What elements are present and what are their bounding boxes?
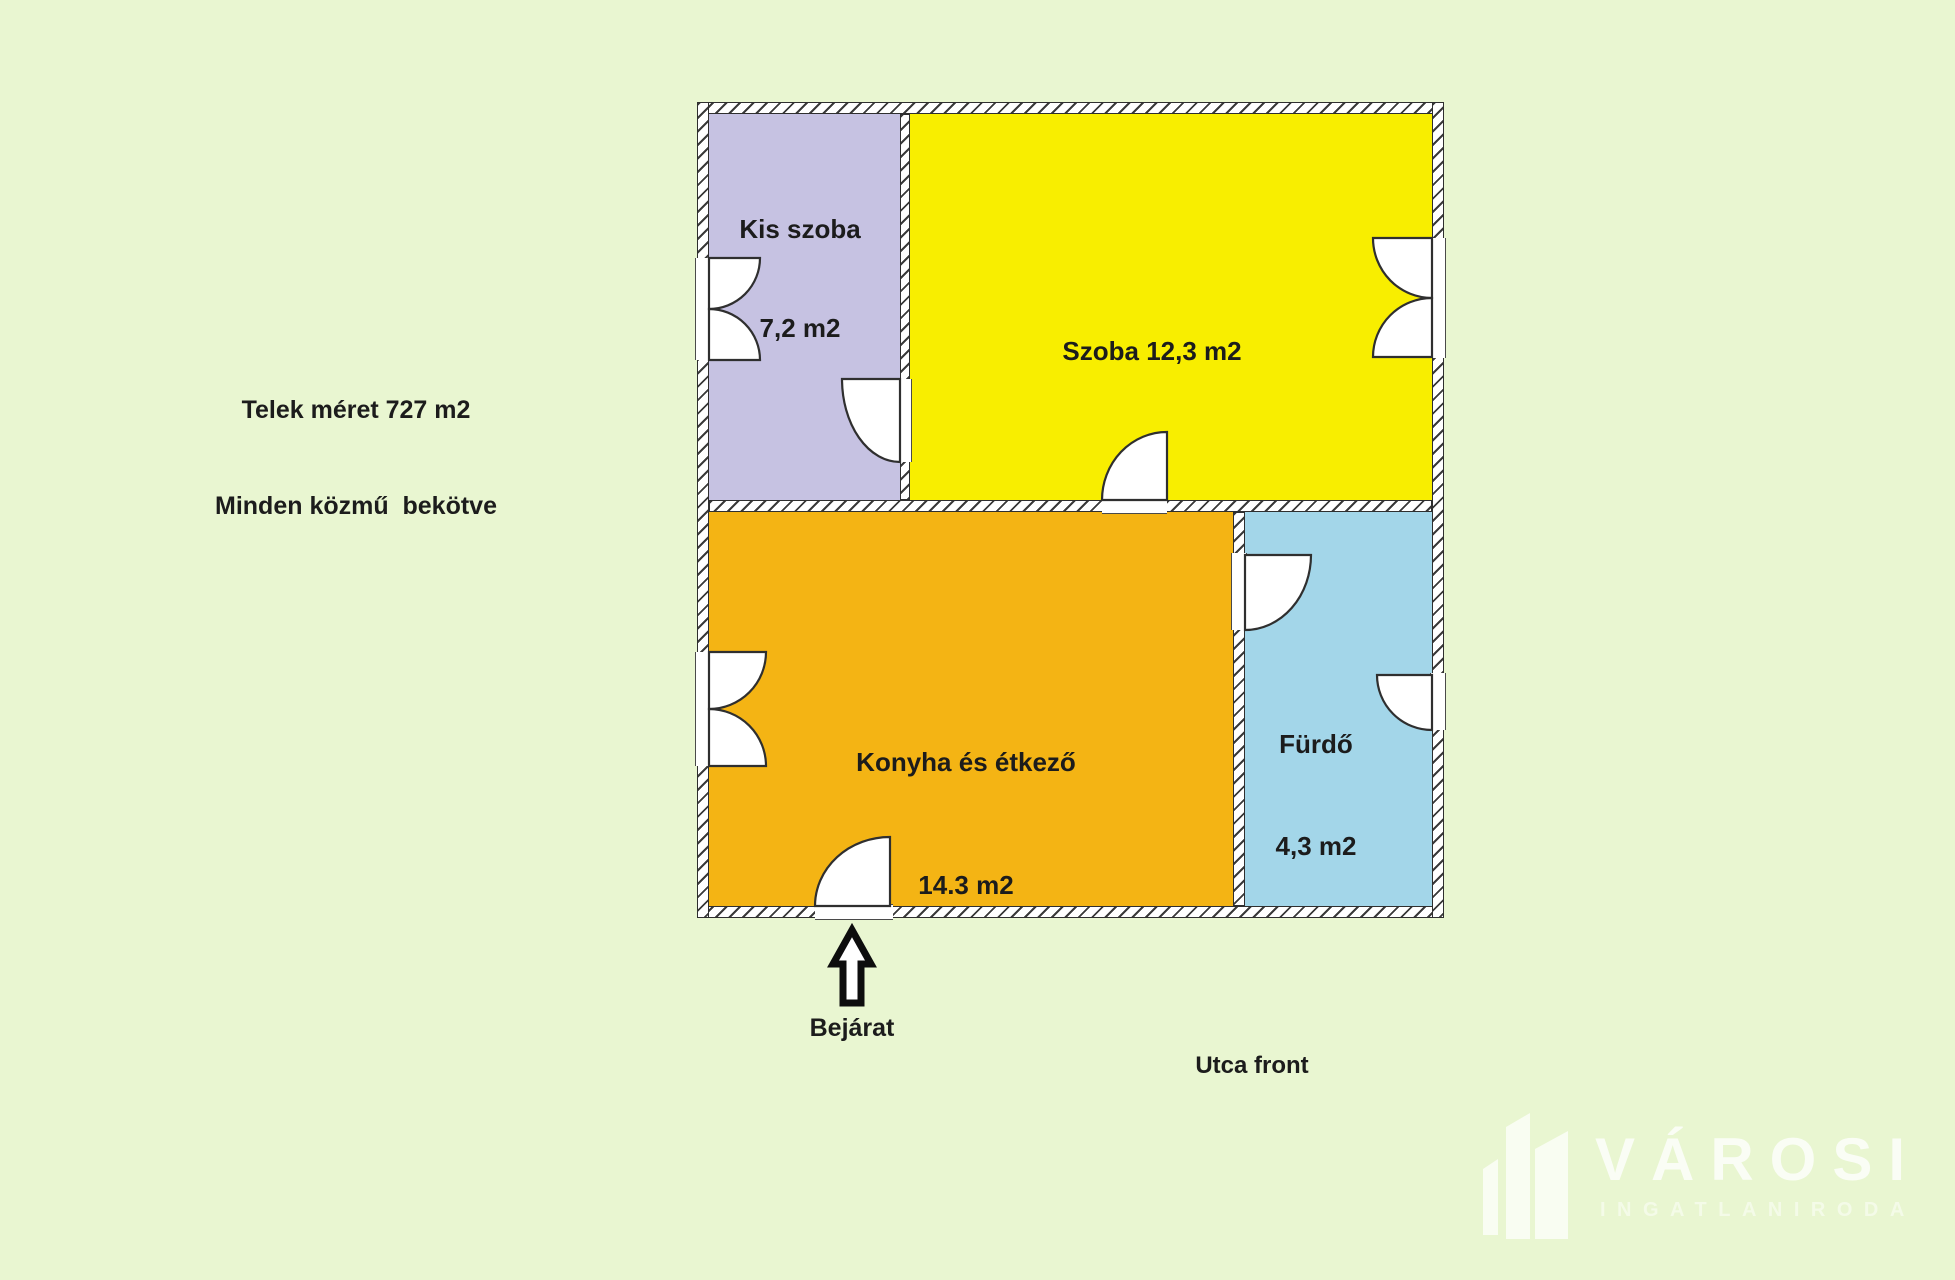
room-label-szoba: Szoba 12,3 m2 (1062, 269, 1241, 434)
brand-watermark: VÁROSI INGATLANIRODA (1470, 1095, 1940, 1255)
door-opening-szoba (1102, 498, 1167, 514)
site-info-line2: Minden közmű bekötve (215, 490, 497, 522)
door-opening-furdo (1231, 553, 1247, 630)
site-info-line1: Telek méret 727 m2 (215, 394, 497, 426)
room-name-konyha: Konyha és étkező (856, 742, 1076, 783)
room-name-kis-szoba: Kis szoba (739, 213, 860, 246)
room-area-konyha: 14.3 m2 (856, 865, 1076, 906)
room-label-furdo: Fürdő 4,3 m2 (1276, 659, 1357, 931)
room-name-furdo: Fürdő (1276, 727, 1357, 761)
window-szoba (1430, 238, 1446, 358)
window-konyha (695, 652, 711, 766)
street-front-label: Utca front (1195, 1052, 1308, 1080)
room-label-kis-szoba: Kis szoba 7,2 m2 (739, 147, 860, 411)
brand-name: VÁROSI (1595, 1125, 1921, 1194)
door-opening-kis-szoba (898, 379, 912, 462)
window-furdo (1430, 673, 1446, 730)
entrance-label: Bejárat (810, 1014, 895, 1043)
wall-left (697, 102, 709, 918)
brand-buildings-icon (1480, 1107, 1575, 1247)
wall-divider-horizontal (709, 500, 1432, 512)
site-info: Telek méret 727 m2 Minden közmű bekötve (215, 330, 497, 586)
room-label-konyha: Konyha és étkező 14.3 m2 (856, 660, 1076, 988)
wall-right (1432, 102, 1444, 918)
room-name-szoba: Szoba 12,3 m2 (1062, 335, 1241, 368)
floorplan-canvas: Telek méret 727 m2 Minden közmű bekötve (0, 0, 1955, 1280)
brand-subtitle: INGATLANIRODA (1600, 1199, 1916, 1222)
wall-top (697, 102, 1444, 114)
window-kis-szoba (695, 258, 711, 360)
room-area-furdo: 4,3 m2 (1276, 829, 1357, 863)
room-area-kis-szoba: 7,2 m2 (739, 312, 860, 345)
